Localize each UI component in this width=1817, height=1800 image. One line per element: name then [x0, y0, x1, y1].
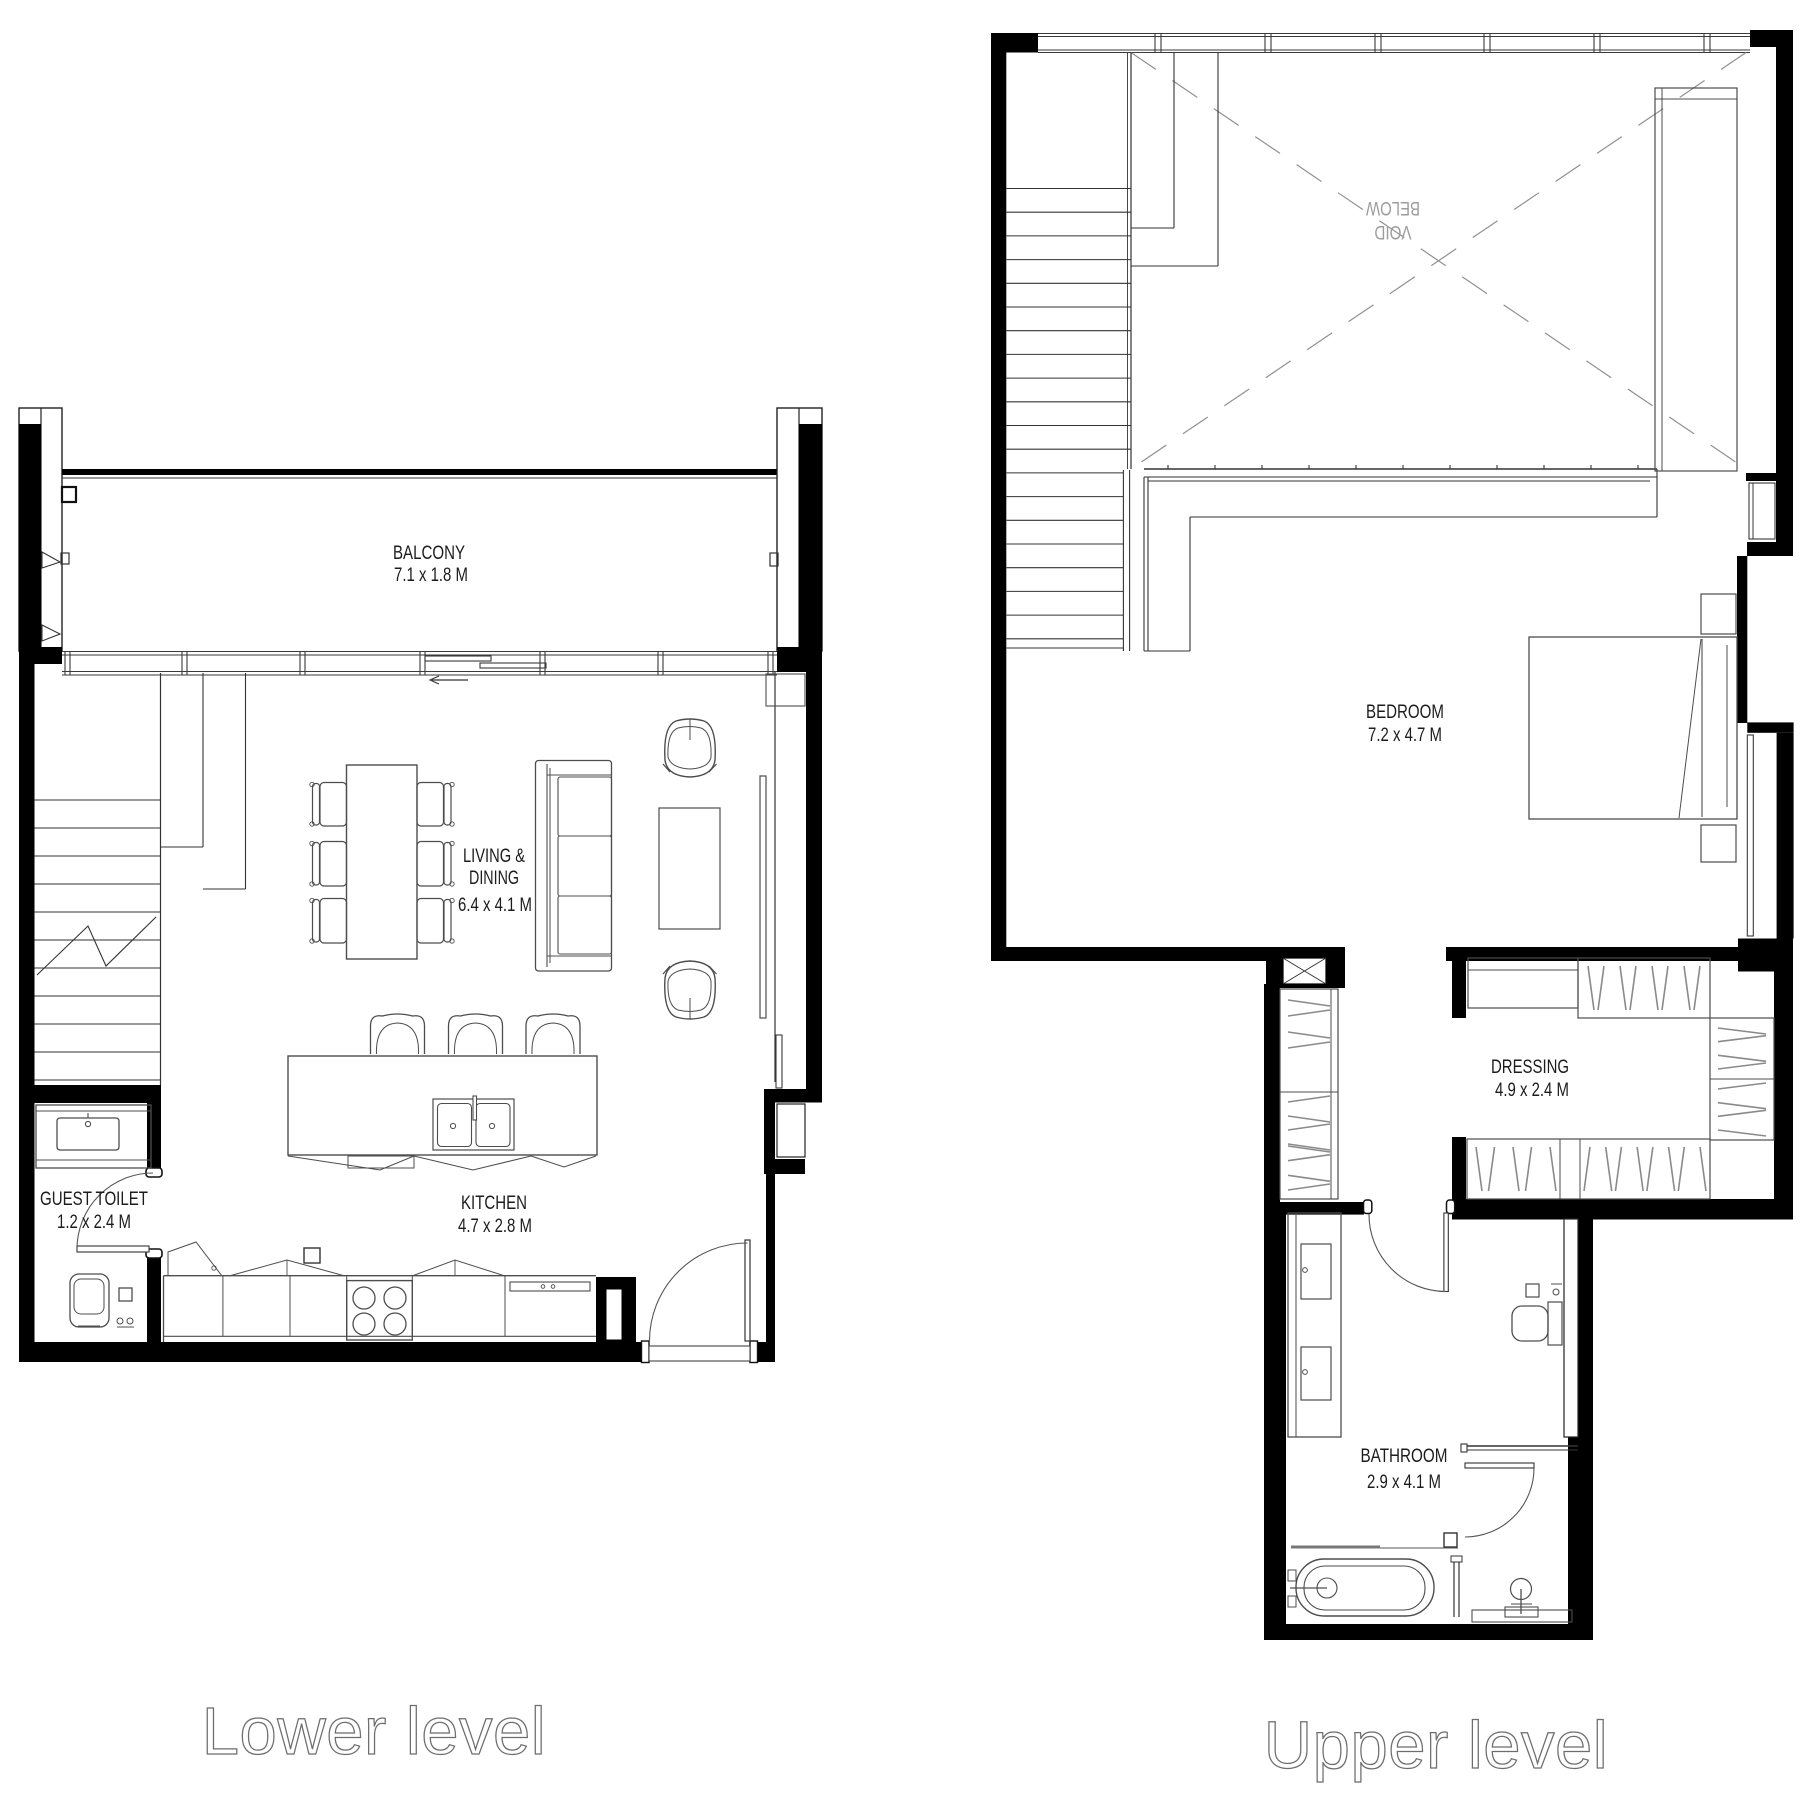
svg-text:Lower level: Lower level: [202, 1694, 546, 1769]
svg-text:LIVING &: LIVING &: [463, 846, 525, 867]
svg-text:KITCHEN: KITCHEN: [461, 1193, 527, 1214]
svg-text:BELOW: BELOW: [1366, 197, 1420, 218]
svg-text:7.2 x 4.7 M: 7.2 x 4.7 M: [1368, 725, 1442, 746]
svg-text:DRESSING: DRESSING: [1491, 1057, 1569, 1078]
svg-text:BEDROOM: BEDROOM: [1366, 702, 1444, 723]
svg-text:BALCONY: BALCONY: [393, 543, 465, 564]
svg-text:4.9 x 2.4 M: 4.9 x 2.4 M: [1495, 1080, 1569, 1101]
svg-text:2.9 x 4.1 M: 2.9 x 4.1 M: [1367, 1472, 1441, 1493]
svg-text:7.1 x 1.8 M: 7.1 x 1.8 M: [394, 565, 468, 586]
svg-text:6.4 x 4.1 M: 6.4 x 4.1 M: [458, 895, 532, 916]
svg-text:4.7 x 2.8 M: 4.7 x 2.8 M: [458, 1216, 532, 1237]
svg-text:BATHROOM: BATHROOM: [1361, 1446, 1448, 1467]
svg-text:1.2 x 2.4 M: 1.2 x 2.4 M: [57, 1212, 131, 1233]
svg-text:DINING: DINING: [469, 868, 519, 889]
svg-text:GUEST TOILET: GUEST TOILET: [40, 1189, 148, 1210]
svg-text:VOID: VOID: [1375, 221, 1412, 242]
svg-text:Upper level: Upper level: [1264, 1708, 1608, 1783]
